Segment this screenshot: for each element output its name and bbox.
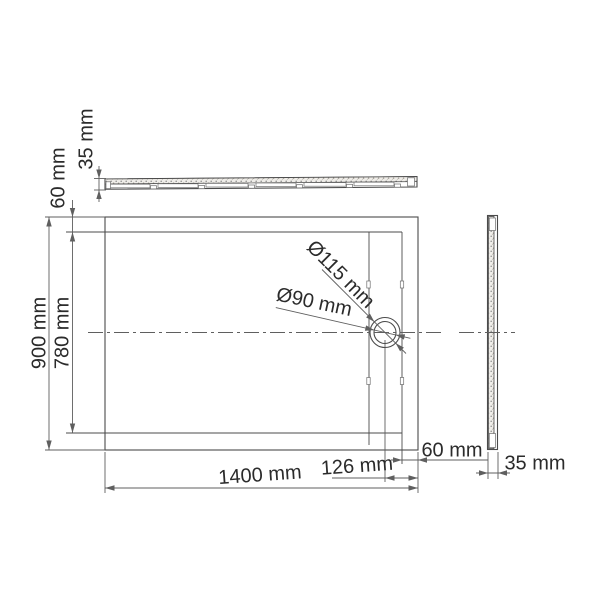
label-right-rim-inset: 60 mm: [421, 439, 482, 461]
profile-pocket: [206, 183, 248, 187]
label-side-view-thickness: 35 mm: [504, 452, 565, 474]
rib-tick: [400, 281, 403, 288]
label-outer-depth: 900 mm: [28, 297, 50, 369]
label-outer-width: 1400 mm: [218, 461, 303, 489]
tray-outer-outline: [105, 217, 418, 450]
profile-pocket: [354, 182, 394, 186]
profile-foot: [347, 184, 353, 187]
right-profile-pocket-bottom: [489, 434, 495, 448]
label-drain-center-offset: 126 mm: [320, 453, 394, 480]
rib-tick: [400, 378, 403, 385]
right-profile-pocket-top: [489, 218, 495, 231]
profile-pocket: [158, 184, 198, 188]
profile-foot: [297, 185, 303, 188]
profile-pocket: [256, 183, 296, 187]
profile-foot: [249, 185, 255, 188]
drawing-canvas: 35 mm 60 mm 900 mm 780 mm Ø115 mm Ø90 mm…: [0, 0, 600, 600]
profile-pocket: [304, 183, 346, 187]
label-inner-depth: 780 mm: [51, 297, 73, 369]
rib-tick: [367, 378, 370, 385]
top-profile-section-view: [105, 177, 417, 190]
profile-end-cap-left: [106, 182, 111, 189]
technical-drawing: 35 mm 60 mm 900 mm 780 mm Ø115 mm Ø90 mm…: [0, 0, 600, 600]
label-left-rim-inset: 60 mm: [47, 147, 69, 208]
profile-foot: [199, 185, 205, 188]
dimension-labels: 35 mm 60 mm 900 mm 780 mm Ø115 mm Ø90 mm…: [28, 108, 565, 489]
profile-end-cap-right: [408, 178, 415, 186]
profile-foot: [395, 184, 401, 187]
profile-pocket: [110, 184, 150, 188]
profile-foot: [151, 186, 157, 189]
label-top-view-thickness: 35 mm: [75, 108, 97, 169]
